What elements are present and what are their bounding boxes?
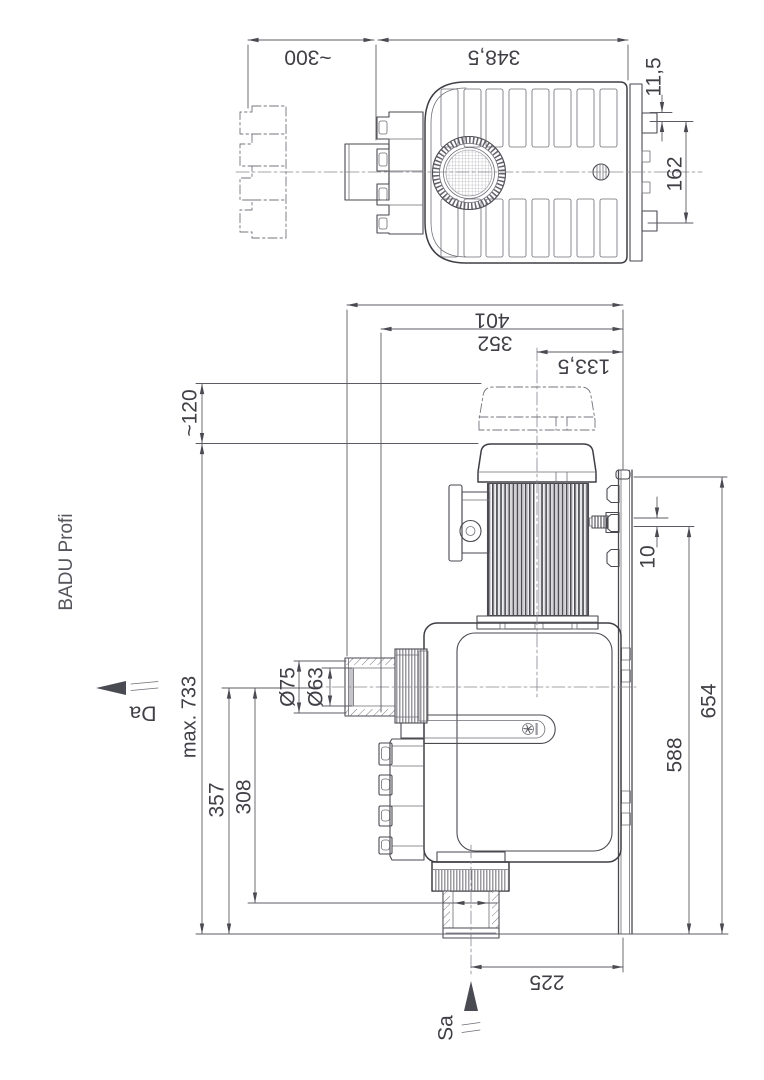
dim-union-inner-diameter-label: Ø63 — [305, 667, 328, 707]
dim-union-outer-diameter-label: Ø75 — [277, 667, 300, 707]
technical-drawing: BADU Profi ~300 348,5 11,5 162 401 352 1… — [0, 0, 764, 1080]
dim-barb-height-label: 588 — [664, 737, 687, 772]
title-label: BADU Profi — [56, 513, 77, 610]
drawing-page: BADU Profi ~300 348,5 11,5 162 401 352 1… — [0, 0, 764, 1080]
dim-removal-clearance-label: ~300 — [284, 45, 331, 68]
discharge-flow-label: Da — [129, 701, 156, 724]
dim-flange-spacing-label: 162 — [664, 156, 687, 191]
dim-suction-socket-height-label: 308 — [233, 779, 256, 814]
discharge-union-nut — [395, 649, 427, 723]
dim-bracket-top-height-label: 654 — [698, 683, 721, 718]
strainer-lid-top — [433, 137, 506, 210]
dim-discharge-axis-height-label: 357 — [206, 782, 229, 817]
dim-max-height-label: max. 733 — [178, 676, 200, 758]
motor-fins — [488, 484, 589, 616]
dim-overall-depth-label: 401 — [474, 308, 509, 331]
dim-bracket-gap-label: 10 — [637, 545, 660, 568]
dim-flange-offset-label: 11,5 — [643, 57, 666, 96]
suction-flow-label: Sa — [435, 1015, 458, 1041]
dim-housing-length-label: 348,5 — [468, 45, 521, 68]
dim-union-depth-label: 352 — [477, 331, 512, 354]
suction-union-nut — [434, 870, 508, 891]
dim-cover-clearance-label: ~120 — [179, 389, 202, 436]
dim-suction-axis-to-wall-label: 225 — [529, 970, 564, 993]
dim-axis-to-wall-label: 133,5 — [558, 354, 611, 377]
